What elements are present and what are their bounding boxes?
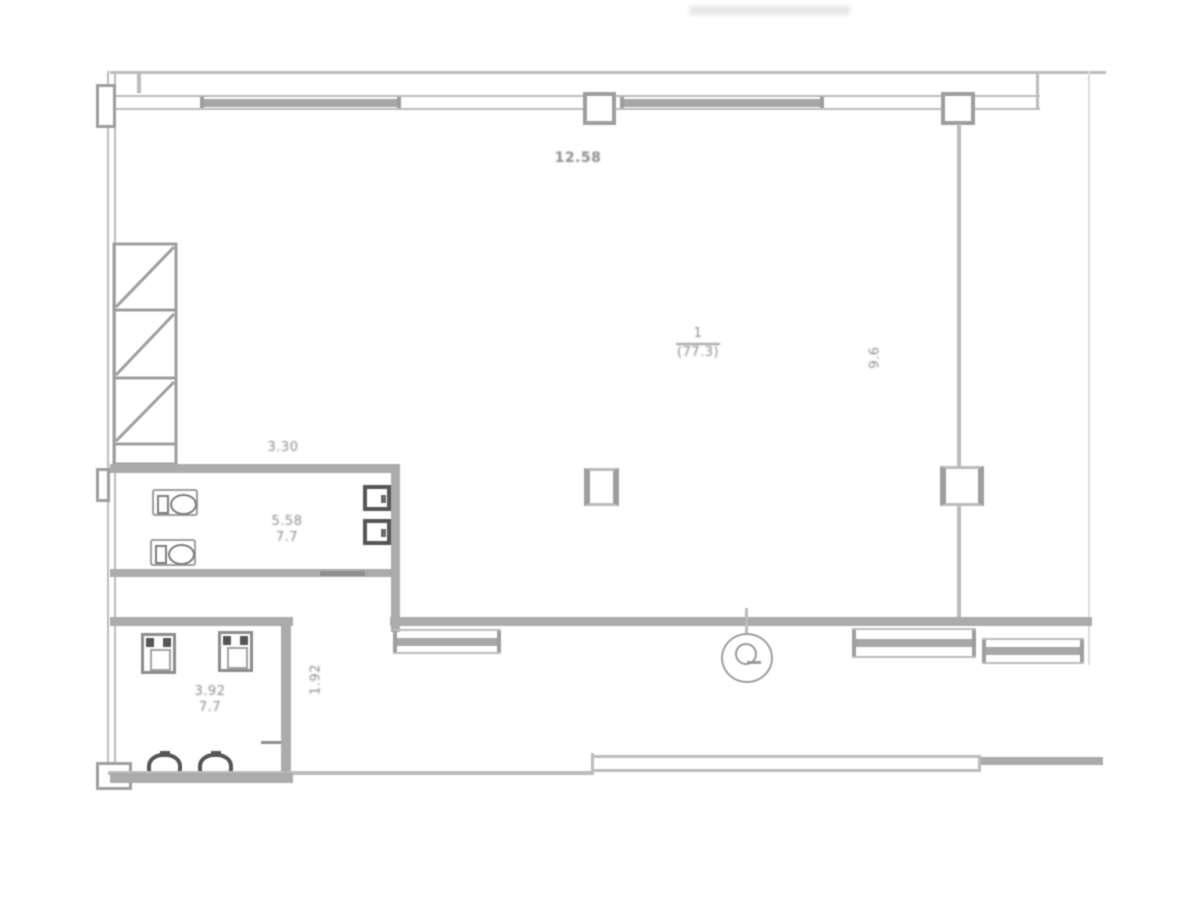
toilet-tank — [157, 495, 169, 514]
room-label-wc-upper: 5.58 7.7 — [252, 514, 322, 547]
exterior-wall-top-outer — [110, 71, 1106, 74]
window-glass — [854, 639, 974, 647]
column-on-partition — [940, 466, 984, 506]
toilet-bowl — [168, 544, 195, 565]
room-label-hall: 1 (77.3) — [648, 326, 748, 362]
pier-left-mid — [96, 468, 110, 502]
window-endcap — [200, 97, 204, 108]
window-mullion-column-2 — [941, 92, 975, 125]
room-area: 7.7 — [199, 700, 221, 715]
wc-upper-door-threshold — [320, 571, 365, 576]
dim-hall-depth: 9.6 — [868, 328, 883, 388]
wc-lower-wall-top — [110, 617, 293, 626]
pier-top-left — [96, 84, 116, 128]
bottom-wall-right — [981, 757, 1103, 765]
window-endcap — [397, 97, 401, 108]
lower-window-a — [393, 629, 501, 654]
sink-fixture — [141, 633, 176, 674]
exterior-wall-left-outer — [107, 71, 109, 790]
wc-upper-wall-right — [391, 464, 400, 632]
toilet-bowl — [170, 494, 197, 515]
sink-tap — [163, 638, 171, 647]
toilet-fixture — [152, 489, 198, 516]
toilet-tank — [155, 545, 167, 564]
exterior-wall-right — [1088, 71, 1090, 665]
top-left-tick — [137, 73, 141, 93]
window-mullion-column-1 — [583, 92, 616, 125]
sink-fixture — [218, 631, 253, 672]
top-wall-step-tick — [1036, 71, 1039, 110]
window-endcap — [852, 630, 856, 656]
wc-lower-door-tick — [261, 741, 281, 744]
window-endcap — [820, 97, 824, 108]
circle-fixture-stem — [745, 608, 748, 636]
room-area: 7.7 — [276, 530, 298, 545]
dim-top-width: 12.58 — [532, 150, 624, 166]
main-wall-horizontal — [390, 617, 1092, 626]
scan-smudge — [690, 6, 850, 15]
window-endcap — [620, 97, 624, 108]
fixture-detail — [381, 495, 386, 503]
wc-upper-wall-top — [110, 464, 400, 473]
toilet-fixture — [150, 539, 196, 566]
top-window-sash-a — [200, 95, 401, 110]
wc-lower-wall-bottom — [110, 773, 293, 783]
room-number: 1 — [676, 326, 721, 345]
circle-fixture-detail — [747, 661, 761, 664]
room-label-wc-lower: 3.92 7.7 — [175, 684, 245, 717]
room-number: 3.92 — [195, 684, 226, 699]
sink-basin — [227, 647, 248, 669]
circle-fixture — [721, 633, 773, 683]
sink-basin — [150, 649, 171, 671]
window-glass — [395, 638, 499, 646]
window-endcap — [972, 630, 976, 656]
bottom-wall-mid-top — [593, 755, 981, 758]
window-endcap — [1080, 640, 1084, 662]
wall-hung-fixture — [363, 485, 391, 511]
sink-tap — [146, 638, 154, 647]
window-endcap — [393, 631, 397, 652]
dim-wc-lower-depth: 1.92 — [309, 652, 324, 708]
fixture-detail — [381, 529, 386, 537]
window-glass — [622, 99, 822, 107]
top-window-sash-b — [620, 95, 824, 110]
sink-tap — [240, 636, 248, 645]
floor-plan: 12.58 1 (77.3) 9.6 3.30 5.58 7.7 3.92 7.… — [0, 0, 1193, 900]
vent-shaft-stack — [112, 242, 178, 466]
window-endcap — [497, 631, 501, 652]
lower-window-c — [982, 638, 1084, 664]
bottom-wall-mid-bottom — [593, 769, 981, 772]
column-freestanding — [584, 468, 619, 506]
wc-lower-wall-right — [281, 617, 291, 783]
toilet-tank — [211, 751, 221, 756]
lower-window-b — [852, 628, 976, 658]
dim-corridor-width: 3.30 — [250, 440, 316, 455]
toilet-tank — [160, 751, 170, 756]
window-glass — [984, 647, 1082, 655]
room-area: (77.3) — [677, 345, 719, 360]
window-endcap — [982, 640, 986, 662]
window-glass — [202, 99, 399, 107]
sink-tap — [223, 636, 231, 645]
room-number: 5.58 — [272, 514, 303, 529]
wall-hung-fixture — [363, 519, 391, 545]
partition-wall-right — [957, 124, 961, 620]
